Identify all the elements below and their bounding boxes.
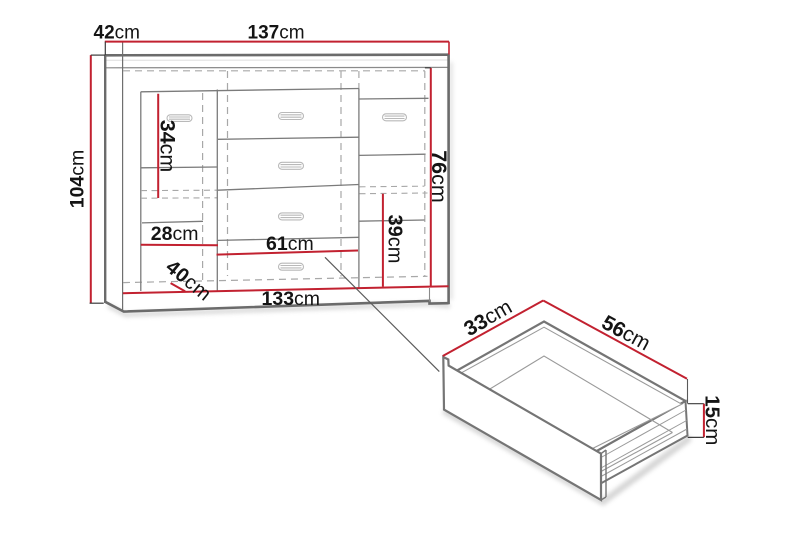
svg-text:34cm: 34cm <box>156 120 180 173</box>
svg-text:39cm: 39cm <box>383 215 405 264</box>
svg-text:76cm: 76cm <box>427 150 451 203</box>
svg-text:28cm: 28cm <box>151 223 199 245</box>
svg-text:42cm: 42cm <box>94 23 140 44</box>
svg-text:104cm: 104cm <box>67 150 89 209</box>
svg-text:133cm: 133cm <box>262 288 321 310</box>
svg-text:15cm: 15cm <box>701 395 724 445</box>
svg-text:137cm: 137cm <box>248 23 305 44</box>
svg-text:61cm: 61cm <box>266 233 314 255</box>
